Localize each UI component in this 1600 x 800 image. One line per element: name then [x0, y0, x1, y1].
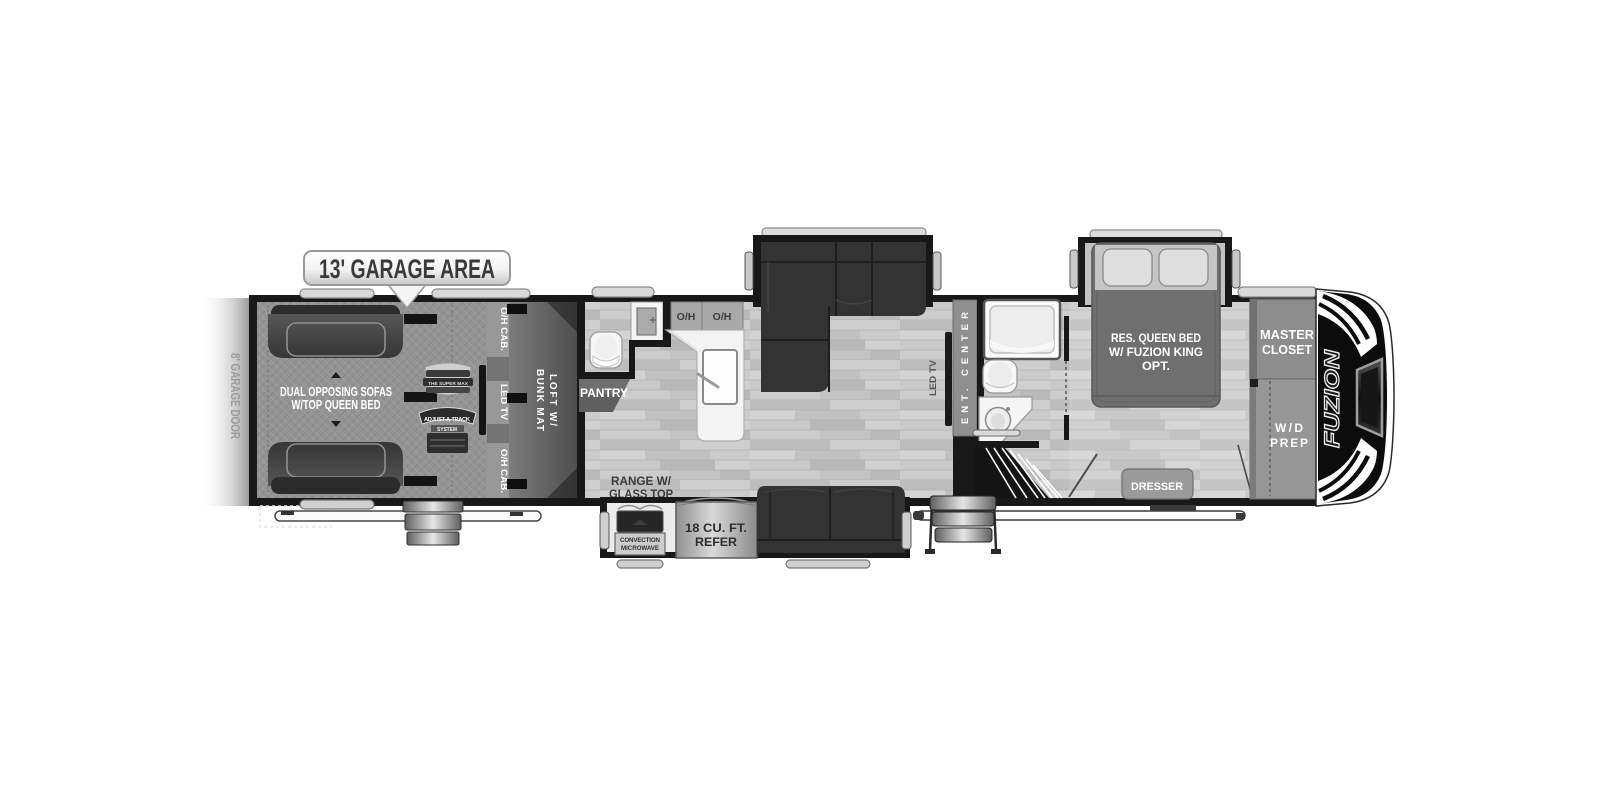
svg-text:PANTRY: PANTRY [580, 388, 628, 400]
svg-text:DUAL OPPOSING SOFAS: DUAL OPPOSING SOFAS [280, 385, 392, 399]
svg-text:LED TV: LED TV [928, 359, 939, 396]
svg-text:W/ FUZION KING: W/ FUZION KING [1109, 345, 1203, 359]
svg-text:FUZION: FUZION [1320, 349, 1344, 448]
svg-text:THE SUPER MAX: THE SUPER MAX [428, 381, 469, 387]
svg-text:18 CU. FT.: 18 CU. FT. [685, 523, 747, 535]
svg-text:ADJUST-A-TRACK: ADJUST-A-TRACK [424, 417, 471, 423]
svg-text:RANGE W/: RANGE W/ [611, 476, 672, 488]
svg-text:SYSTEM: SYSTEM [437, 427, 457, 433]
svg-text:RES. QUEEN BED: RES. QUEEN BED [1111, 331, 1201, 345]
svg-text:CONVECTION: CONVECTION [620, 537, 661, 544]
svg-text:OPT.: OPT. [1142, 359, 1170, 373]
svg-text:O/H: O/H [713, 311, 732, 323]
svg-text:W/D: W/D [1275, 421, 1303, 435]
svg-text:8' GARAGE DOOR: 8' GARAGE DOOR [228, 353, 242, 439]
svg-text:13' GARAGE AREA: 13' GARAGE AREA [319, 254, 495, 284]
svg-text:O/H: O/H [677, 311, 696, 323]
svg-text:DRESSER: DRESSER [1131, 481, 1183, 493]
svg-text:W/TOP QUEEN BED: W/TOP QUEEN BED [292, 398, 381, 412]
svg-text:LOFT W/: LOFT W/ [547, 374, 558, 426]
svg-text:BUNK MAT: BUNK MAT [534, 369, 545, 431]
svg-text:REFER: REFER [695, 537, 738, 549]
svg-text:CLOSET: CLOSET [1262, 343, 1312, 357]
svg-text:MASTER: MASTER [1260, 328, 1314, 342]
svg-text:MICROWAVE: MICROWAVE [621, 545, 659, 552]
